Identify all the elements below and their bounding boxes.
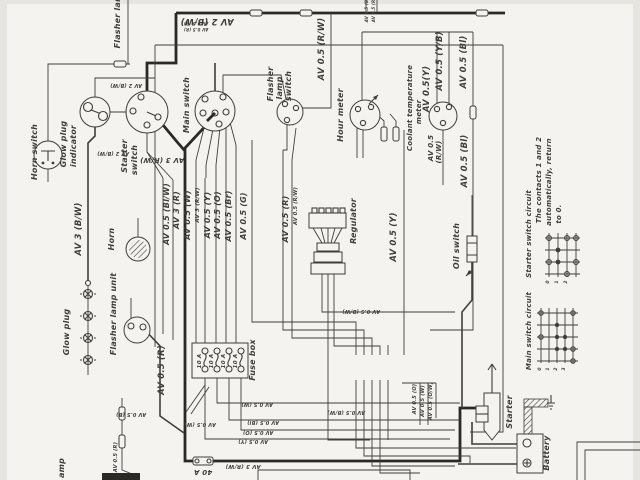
wire-label: AV 0.5 (Y) [203,192,212,240]
starter-switch-label-2: switch [130,145,139,175]
horn-symbol [126,237,150,261]
wire-label: AV 0.5 (Y) [238,438,269,444]
wire-label: 10 A [221,354,227,369]
wire-label: 1 [554,280,560,283]
wire-label: AV 0.5 (R) [184,27,210,32]
wire-label: 0 [545,280,551,283]
lamp-partial-label: amp [57,458,66,478]
wire-label: 2 [553,367,559,370]
wire-label: AV 0.5 (Bl/W) [162,183,171,246]
wire-label: 10 A [233,354,239,369]
wire-label: 2 [563,280,569,283]
wire-label: AV 0.5 (Bl) [460,135,470,189]
glow-plug-symbol [80,281,96,376]
starter-symbol [476,364,500,440]
main-switch-label: Main switch [182,77,191,133]
wire-label: AV 2 (B/W) [110,82,143,88]
flasher-lamp-partial-label: Flasher lamp [113,0,122,48]
wire-label: 0 [537,367,543,370]
glow-plug-indicator-symbol [80,97,110,127]
wire-label: AV 0.5 (R) [281,195,290,243]
glow-plug-indicator-label-2: indicator [69,124,78,167]
note-line-3: to 0. [555,204,563,223]
wire-label: (R/W) [435,140,443,163]
wire-label: 3 [561,367,567,370]
starter-switch-circuit-label: Starter switch circuit [525,190,533,278]
wire-label: AV 0.5 (Y) [389,212,399,262]
wire-label: AV 3 (R/W) [195,187,201,223]
wiring-diagram-page: Horn switchGlow plugindicatorStarterswit… [0,0,640,480]
battery-symbol [517,434,543,473]
wire-label: AV 0.5 (G) [239,192,248,240]
wire-label: AV 0.5 (R/W) [317,18,327,82]
wire-label: 40 A [194,468,212,476]
wire-label: AV 0.5 (B/W) [327,409,366,415]
wire-label: AV 0.5 (B) [116,411,147,417]
hour-meter-label: Hour meter [336,87,345,141]
glow-plug-label: Glow plug [62,309,71,356]
battery-label: Battery [542,435,551,471]
flasher-lamp-unit-symbol [124,317,150,343]
wire-label: AV 0.5 (O) [213,191,222,240]
wire-label: AV 0.5 (R/W) [293,187,299,226]
wire-label: AV 0.5 (W) [183,190,192,241]
wiring-diagram: Horn switchGlow plugindicatorStarterswit… [0,0,640,480]
horn-label: Horn [107,228,116,251]
wire-label: AV 0.5 (Bl) [247,419,280,425]
ground-strap-symbol [524,395,555,434]
wire-label: AV 0.5 [427,135,435,162]
coolant-meter-label-1: Coolant temperature [406,65,414,151]
flasher-lamp-switch-label-1: Flasher [266,66,275,102]
flasher-lamp-switch-symbol [277,99,303,125]
wire-label: AV 2 (B/W) [97,150,130,156]
wire-label: AV 3 (R/W) [140,156,185,164]
wire-label: AV 3 (R/W) [225,463,261,469]
wire-label: AV 0.5 (W) [241,401,274,407]
wire-label: AV 0.5 (R) [371,0,376,23]
starter-label: Starter [505,394,514,428]
wire-label: AV 0.5 (Y/B) [435,31,445,91]
wire-label: AV 0.5 (R) [113,442,119,473]
glow-plug-indicator-label-1: Glow plug [59,121,68,168]
wire-label: AV 0.5 (B/W) [342,308,381,314]
wire-label: AV 0.5 (R) [157,345,167,396]
regulator-symbol [309,208,346,274]
note-line-1: The contacts 1 and 2 [535,137,543,223]
oil-switch-symbol [466,236,477,276]
flasher-lamp-unit-label: Flasher lamp unit [109,272,118,356]
oil-switch-label: Oil switch [452,223,461,269]
main-switch-symbol [195,91,235,131]
wire-label: AV 0.5 (W) [184,421,217,427]
wire-label: AV 0.5 (Bl) [459,36,469,90]
coolant-temperature-meter-symbol [429,102,457,130]
fuse-box-label: Fuse box [248,339,257,381]
regulator-label: Regulator [349,197,358,244]
flasher-lamp-switch-label-2: lamp [275,76,284,99]
main-switch-circuit-table [537,308,578,363]
wire-label: AV 0.5 (B) [364,0,369,23]
wire-label: AV 3 (B/W) [74,202,84,256]
main-switch-circuit-label: Main switch circuit [525,291,533,370]
wire-label: AV 0.5 (W) [420,385,426,418]
wire-label: AV 0.5 (O) [243,429,275,435]
clipped-lamp-symbol [102,473,140,480]
wire-label: 10 A [209,354,215,369]
wire-label: 10 A [197,354,203,369]
starter-switch-circuit-table [545,233,580,277]
wire-label: AV 0.5 (Br) [224,190,233,242]
note-line-2: automatically, return [545,138,553,226]
flasher-lamp-switch-label-3: switch [284,71,293,101]
wire-label: AV 3 (R) [172,191,181,230]
hour-meter-symbol [350,95,380,130]
wire-label: 1 [545,367,551,370]
horn-switch-label: Horn switch [30,124,39,180]
wire-label: AV 0.5(Y) [422,66,432,113]
wire-label: AV 0.5 (O/W) [428,382,434,421]
main-fuse-symbol [193,457,213,465]
wire-label: AV 0.5 (O) [412,384,418,416]
wire-label: AV 0.5 (B) [184,21,210,26]
starter-switch-symbol [126,91,168,133]
